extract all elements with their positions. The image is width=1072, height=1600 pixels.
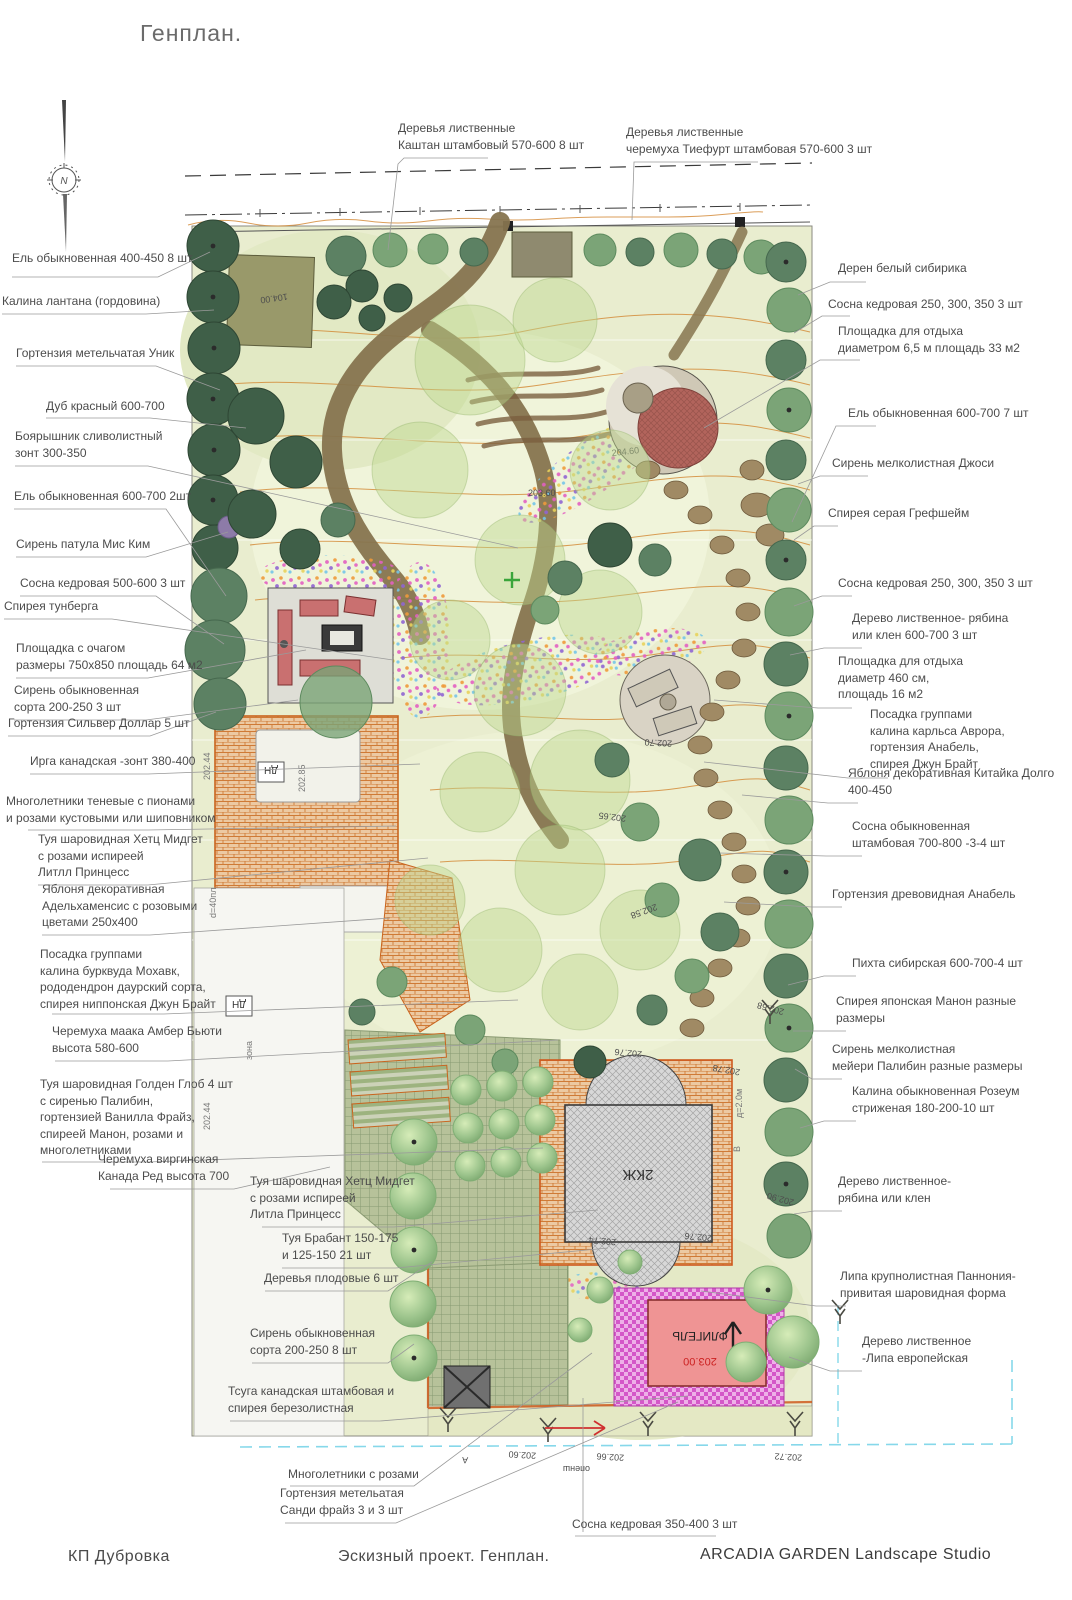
callout-left-6: Ель обыкновенная 600-700 2шт (14, 488, 191, 505)
callout-right-1: Дерен белый сибирика (838, 260, 967, 277)
callout-right-13: Гортензия древовидная Анабель (832, 886, 1016, 903)
callout-left-27: Гортензия метельатая Санди фрайз 3 и 3 ш… (280, 1485, 404, 1518)
callout-left-22: Туя Брабант 150-175 и 125-150 21 шт (282, 1230, 398, 1263)
callout-left-1: Ель обыкновенная 400-450 8 шт (12, 250, 193, 267)
page-title: Генплан. (140, 20, 242, 47)
callout-left-9: Спирея тунберга (4, 598, 98, 615)
callout-left-16: Яблоня декоративная Адельхаменсис с розо… (42, 881, 197, 931)
building-main-label: 2КЖ (622, 1166, 653, 1183)
callout-right-16: Сирень мелколистная мейери Палибин разны… (832, 1041, 1022, 1074)
svg-text:d=40пл: d=40пл (208, 888, 218, 918)
callout-left-25: Тсуга канадская штамбовая и спирея берез… (228, 1383, 394, 1416)
callout-left-18: Черемуха маака Амбер Бьюти высота 580-60… (52, 1023, 222, 1056)
north-arrow: N (47, 100, 81, 252)
callout-left-26: Многолетники с розами (288, 1466, 419, 1483)
callout-right-9: Площадка для отдыха диаметр 460 см, площ… (838, 653, 963, 703)
callout-left-19: Туя шаровидная Голден Глоб 4 шт с сирень… (40, 1076, 233, 1159)
callout-left-23: Деревья плодовые 6 шт (264, 1270, 398, 1287)
footer-studio: ARCADIA GARDEN Landscape Studio (700, 1546, 991, 1564)
footer-stage: Эскизный проект. Генплан. (338, 1548, 549, 1566)
callout-left-5: Боярышник сливолистный зонт 300-350 (15, 428, 162, 461)
building-annex-label: ФЛИГЕЛЬ (672, 1329, 728, 1343)
callout-right-19: Липа крупнолистная Паннония- привитая ша… (840, 1268, 1016, 1301)
svg-text:202.66: 202.66 (596, 1451, 624, 1462)
svg-text:д=2.0м: д=2.0м (734, 1089, 744, 1118)
callout-left-12: Гортензия Сильвер Доллар 5 шт (8, 715, 190, 732)
svg-text:202.44: 202.44 (202, 752, 212, 780)
svg-text:В: В (732, 1146, 742, 1152)
callout-right-17: Калина обыкновенная Розеум стриженая 180… (852, 1083, 1019, 1116)
callout-left-7: Сирень патула Мис Ким (16, 536, 150, 553)
callout-left-17: Посадка группами калина бурквуда Мохавк,… (40, 946, 216, 1012)
callout-right-20: Дерево лиственное -Липа европейская (862, 1333, 971, 1366)
callout-left-15: Туя шаровидная Хетц Мидгет с розами испи… (38, 831, 203, 881)
callout-left-8: Сосна кедровая 500-600 3 шт (20, 575, 185, 592)
svg-text:А: А (462, 1455, 469, 1465)
callout-left-20: Черемуха виргинская Канада Ред высота 70… (98, 1151, 229, 1184)
callout-left-3: Гортензия метельчатая Уник (16, 345, 174, 362)
callout-right-7: Сосна кедровая 250, 300, 350 3 шт (838, 575, 1033, 592)
callout-left-21: Туя шаровидная Хетц Мидгет с розами испи… (250, 1173, 415, 1223)
north-letter: N (60, 176, 68, 187)
elevation-202-70: 202.70 (644, 737, 672, 748)
svg-text:203.60: 203.60 (528, 488, 556, 498)
callout-left-14: Многолетники теневые с пионами и розами … (6, 793, 216, 826)
svg-text:202.60: 202.60 (508, 1449, 536, 1460)
callout-left-24: Сирень обыкновенная сорта 200-250 8 шт (250, 1325, 375, 1358)
callout-left-13: Ирга канадская -зонт 380-400 (30, 753, 195, 770)
callout-left-28: Сосна кедровая 350-400 3 шт (572, 1516, 737, 1533)
callout-left-4: Дуб красный 600-700 (46, 398, 165, 415)
callout-right-2: Сосна кедровая 250, 300, 350 3 шт (828, 296, 1023, 313)
callout-top-cheremukha: Деревья лиственные черемуха Тиефурт штам… (626, 124, 872, 157)
callout-left-10: Площадка с очагом размеры 750х850 площад… (16, 640, 203, 673)
callout-top-kashtan: Деревья лиственные Каштан штамбовый 570-… (398, 120, 584, 153)
callout-right-8: Дерево лиственное- рябина или клен 600-7… (852, 610, 1008, 643)
footer-project: КП Дубровка (68, 1548, 170, 1566)
callout-right-18: Дерево лиственное- рябина или клен (838, 1173, 951, 1206)
callout-left-2: Калина лантана (гордовина) (2, 293, 160, 310)
callout-right-14: Пихта сибирская 600-700-4 шт (852, 955, 1023, 972)
callout-left-11: Сирень обыкновенная сорта 200-250 3 шт (14, 682, 139, 715)
svg-text:опенш: опенш (563, 1464, 590, 1474)
dn2-label: ДН (232, 998, 246, 1009)
callout-right-6: Спирея серая Грефшейм (828, 505, 969, 522)
genplan-sheet: { "header": { "title": "Генплан." }, "fo… (0, 0, 1072, 1600)
svg-text:202.72: 202.72 (774, 1451, 802, 1462)
callout-right-15: Спирея японская Манон разные размеры (836, 993, 1016, 1026)
annex-elevation: 203.00 (683, 1355, 717, 1367)
callout-right-10: Посадка группами калина карльса Аврора, … (870, 706, 1005, 772)
callout-right-5: Сирень мелколистная Джоси (832, 455, 994, 472)
callout-right-4: Ель обыкновенная 600-700 7 шт (848, 405, 1029, 422)
callout-right-3: Площадка для отдыха диаметром 6,5 м площ… (838, 323, 1020, 356)
callout-right-12: Сосна обыкновенная штамбовая 700-800 -3-… (852, 818, 1005, 851)
callout-right-11: Яблоня декоративная Китайка Долго 400-45… (848, 765, 1054, 798)
